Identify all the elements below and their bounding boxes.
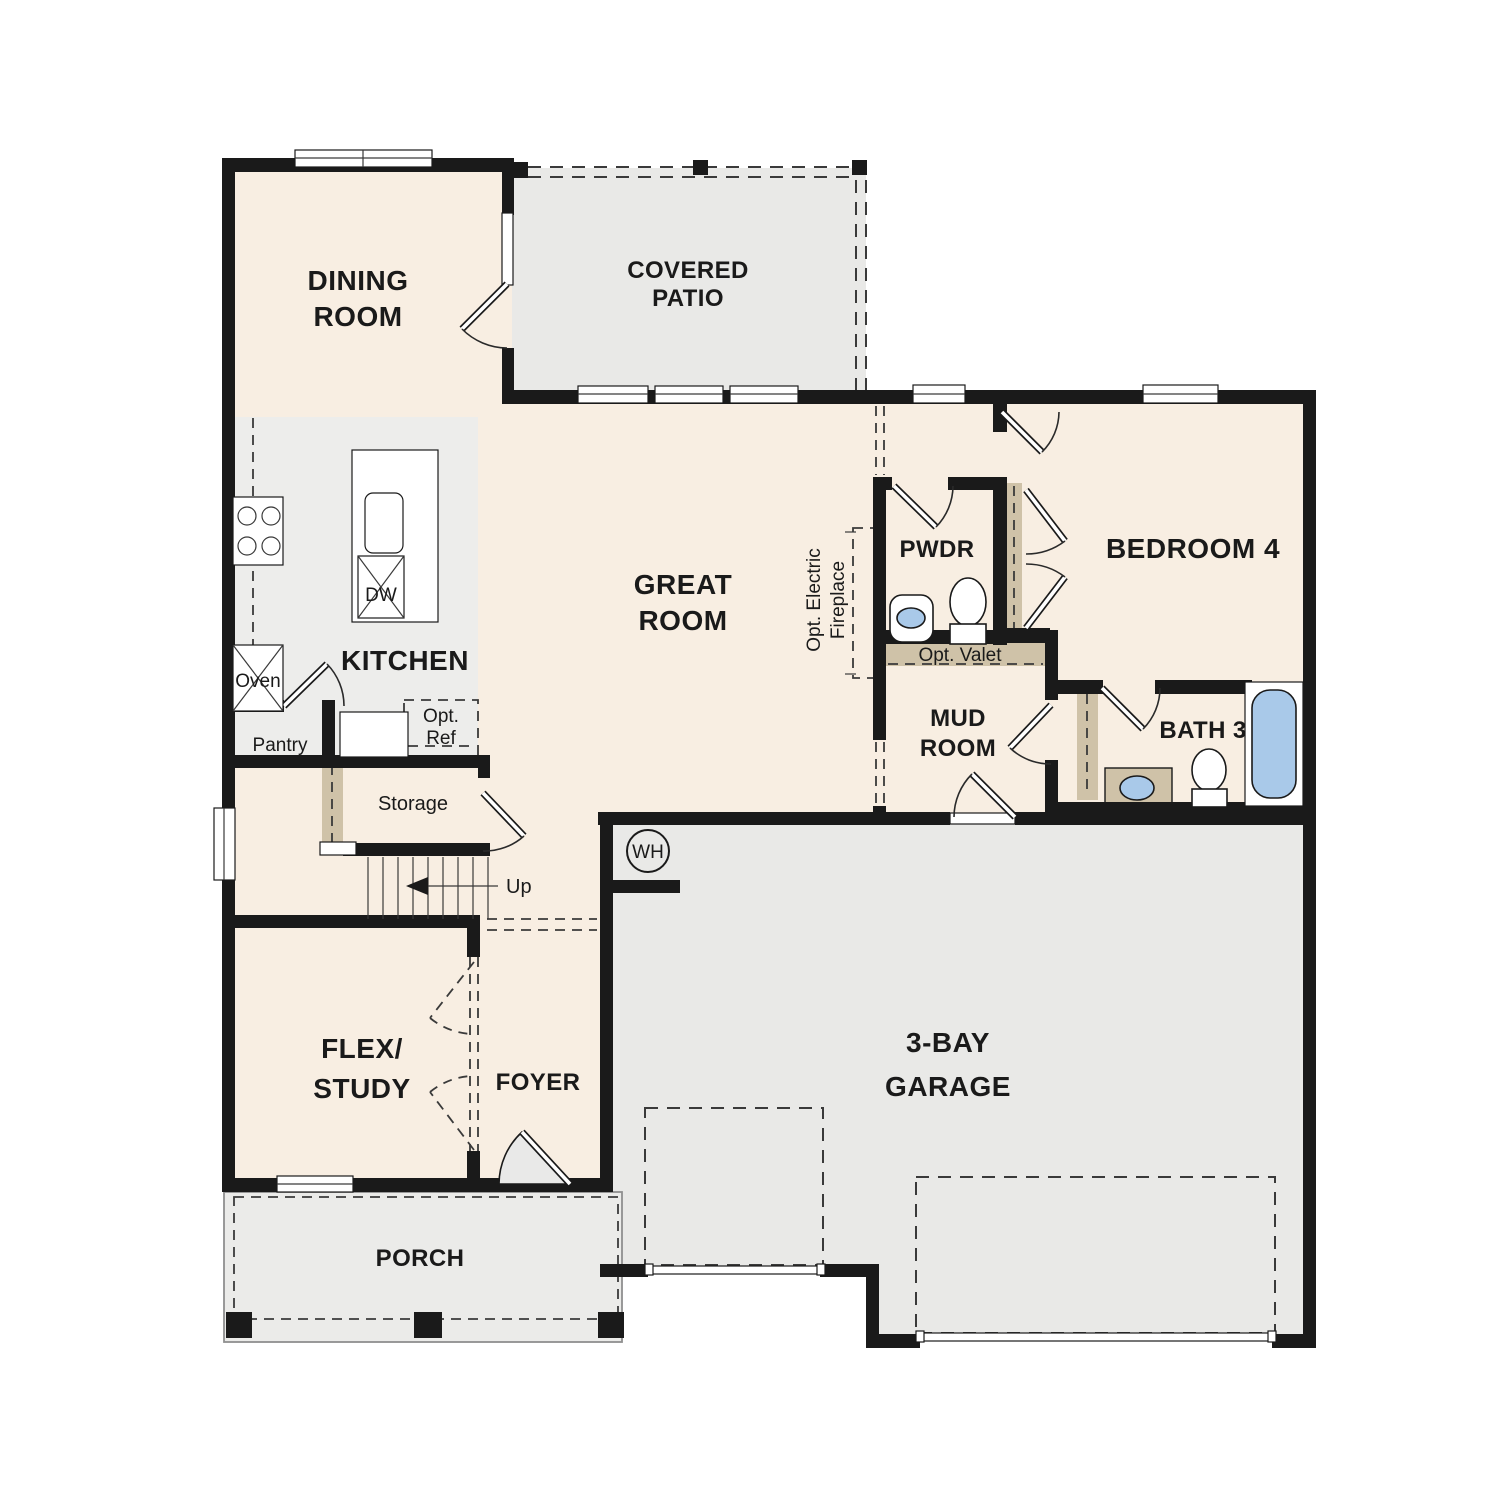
mud-room-label-1: MUD <box>930 705 986 732</box>
wall-segment <box>1272 1334 1316 1348</box>
great-room-label-1: GREAT <box>634 569 732 600</box>
window <box>1143 385 1218 403</box>
bath3-label: BATH 3 <box>1159 717 1246 744</box>
dining-label-2: ROOM <box>313 301 402 332</box>
wall-segment <box>993 477 1007 645</box>
flex-foyer-floor <box>229 920 609 1186</box>
fireplace-label-2: Fireplace <box>828 561 849 639</box>
great-room-label-2: ROOM <box>638 605 727 636</box>
wall-segment <box>343 843 490 856</box>
wall-segment <box>1303 390 1316 1348</box>
wall-segment <box>873 806 886 825</box>
kitchen-label: KITCHEN <box>341 645 469 676</box>
pwdr-label: PWDR <box>900 536 975 563</box>
porch-label: PORCH <box>376 1245 465 1272</box>
pantry-label: Pantry <box>253 735 308 756</box>
floor-plan-drawing: DINING ROOM COVERED PATIO GREAT ROOM KIT… <box>0 0 1500 1500</box>
wall-segment <box>613 880 680 893</box>
wall-segment <box>467 1151 480 1180</box>
opt-valet-label: Opt. Valet <box>918 645 1002 666</box>
window <box>913 385 965 403</box>
wall-segment <box>598 812 886 825</box>
flex-label-1: FLEX/ <box>321 1033 403 1064</box>
wall-segment <box>1007 628 1050 643</box>
wall-segment <box>873 477 892 490</box>
dw-label: DW <box>365 585 397 606</box>
wall-segment <box>1155 680 1252 694</box>
garage-entry-threshold <box>950 813 1015 824</box>
patio-label-1: COVERED <box>627 257 749 284</box>
mud-room-label-2: ROOM <box>920 735 996 762</box>
wall-segment <box>820 1264 879 1277</box>
garage-door <box>916 1331 1276 1342</box>
up-label: Up <box>506 876 532 898</box>
fireplace-label-1: Opt. Electric <box>804 548 825 651</box>
patio-post <box>693 160 708 175</box>
oven-label: Oven <box>235 671 280 692</box>
wall-segment <box>866 1267 879 1348</box>
pwdr-sink <box>890 595 933 642</box>
patio-label-2: PATIO <box>652 285 724 312</box>
opt-ref-label-2: Ref <box>426 728 456 749</box>
wall-segment <box>222 915 480 928</box>
window <box>214 808 235 880</box>
foyer-label: FOYER <box>496 1069 581 1096</box>
storage-label: Storage <box>378 793 448 815</box>
wall-segment <box>600 1264 648 1277</box>
bath3-toilet <box>1192 749 1227 807</box>
window <box>655 386 723 403</box>
kitchen-counter <box>340 712 408 757</box>
wall-segment <box>322 700 335 757</box>
garage-door <box>645 1264 825 1275</box>
wh-label: WH <box>632 842 664 863</box>
window <box>730 386 798 403</box>
garage-label-2: GARAGE <box>885 1071 1011 1102</box>
bath3-tub <box>1245 682 1303 806</box>
cooktop <box>233 497 283 565</box>
wall-segment <box>873 478 886 740</box>
foyer-connector-floor <box>478 818 609 928</box>
bedroom4-label: BEDROOM 4 <box>1106 533 1280 564</box>
dining-label-1: DINING <box>308 265 409 296</box>
floor-plan-page: DINING ROOM COVERED PATIO GREAT ROOM KIT… <box>0 0 1500 1500</box>
window <box>295 150 432 167</box>
wall-segment <box>600 812 613 1192</box>
wall-segment <box>886 812 950 825</box>
window <box>277 1176 353 1192</box>
opt-ref-label-1: Opt. <box>423 706 459 727</box>
window <box>578 386 648 403</box>
porch-post <box>598 1312 624 1338</box>
wall-segment <box>1045 760 1058 815</box>
wall-segment <box>1015 812 1045 825</box>
garage-label-1: 3-BAY <box>906 1027 990 1058</box>
porch-post <box>414 1312 442 1338</box>
patio-post <box>512 162 528 178</box>
flex-label-2: STUDY <box>313 1073 410 1104</box>
stair-hall-floor <box>229 757 490 928</box>
patio-door-jamb <box>502 213 513 285</box>
pwdr-toilet <box>950 578 986 644</box>
wall-segment <box>1045 680 1103 694</box>
bath3-sink <box>1120 776 1154 800</box>
wall-segment <box>467 928 480 957</box>
patio-post <box>852 160 867 175</box>
stair-nose <box>320 842 356 855</box>
porch-post <box>226 1312 252 1338</box>
